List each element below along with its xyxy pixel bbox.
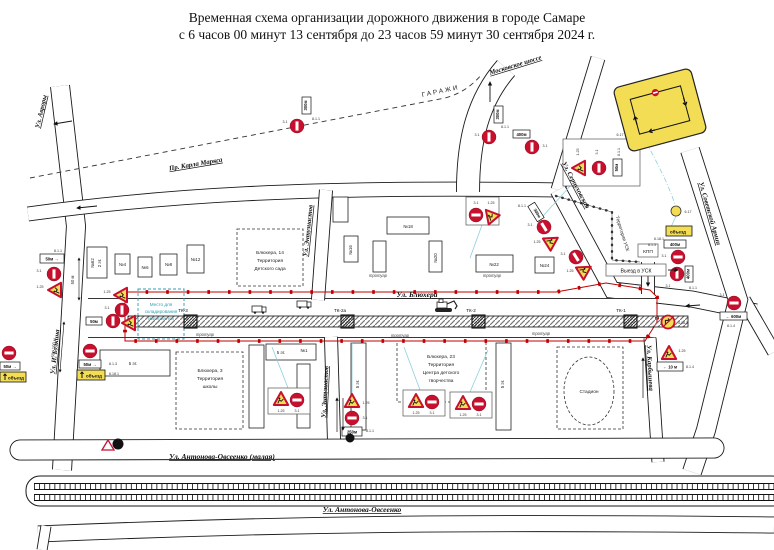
center-line4: творчества: [429, 379, 454, 384]
label-1-25-a: 1.25: [37, 285, 44, 289]
tk2a-label: ТК-2а: [334, 308, 347, 313]
roadworks-sign-p: [662, 346, 676, 359]
usk-exit-text: Выезд в УСК: [621, 269, 652, 275]
label-3-1-a: 3.1: [37, 269, 42, 273]
tk2-label: ТК-2: [466, 308, 476, 313]
detour-scheme-sign-617: 6.17: [613, 68, 707, 152]
no-entry-sign-h: [592, 161, 606, 175]
center-line3: Центра детского: [423, 370, 460, 376]
label-3-1-b1: 3.1: [105, 306, 110, 310]
label-1-25-h: 1.25: [576, 149, 580, 156]
south-5fl-4: 5 эт.: [500, 380, 505, 389]
label-3-1-g: 3.1: [543, 144, 548, 148]
sidewalk-label-4: тротуар: [391, 333, 410, 338]
label-3-1-k: 3.1: [561, 252, 566, 256]
sidewalk-label-2: тротуар: [483, 273, 502, 278]
street-label-karla-marksa: Пр. Карла Маркса: [168, 157, 224, 173]
sign-group-left-edge: 50м → объезд: [0, 346, 26, 382]
no-entry-sign-b1: [115, 303, 129, 317]
sign-group-karbysheva: 1.25 ← 10 м 8.1.4: [657, 346, 694, 371]
label-8-1-3-c: 8.1.3: [109, 362, 117, 366]
kinder-line1: Блюхера, 14: [256, 250, 284, 256]
plate-50m-b: 50м: [90, 319, 98, 324]
street-label-antonova-malaya: Ул. Антонова-Овсеенко (малая): [169, 452, 275, 461]
plate-50m-a: 50м →: [45, 257, 58, 262]
sign-group-moscow-2: 400м 8.1.1 3.1: [501, 125, 548, 154]
no-entry-sign-s1: [290, 393, 304, 407]
usk-exit-label: Выезд в УСК: [606, 264, 678, 276]
no-entry-sign-i: [469, 208, 483, 222]
street-label-avrory: Ул. Авроры: [34, 94, 48, 129]
label-3-1-s4: 3.1: [477, 413, 482, 417]
traffic-scheme-map: №62 2 эт. №4 №6 №8 №12 №16 №18 №20 №22 №…: [0, 0, 774, 550]
dimension-50m-label: 50 м: [70, 276, 75, 285]
detour-sign-c: объезд: [86, 374, 102, 379]
sidewalk-label-5: тротуар: [532, 331, 551, 336]
label-3-1-j: 3.1: [528, 223, 533, 227]
roadworks-sign-a: [48, 283, 61, 297]
building-8: №8: [165, 262, 173, 267]
no-entry-sign-s4: [472, 397, 486, 411]
building-1: №1: [300, 348, 308, 353]
label-8-1-4-n: 8.1.4: [727, 324, 735, 328]
label-1-25-k: 1.25: [567, 269, 574, 273]
label-3-1-h: 3.1: [595, 150, 599, 155]
label-1-25-b1: 1.25: [104, 290, 111, 294]
label-8-1-3-l: 8.1.3: [648, 243, 656, 247]
label-3-1-s3: 3.1: [430, 411, 435, 415]
label-8-1-1-j: 8.1.1: [518, 204, 526, 208]
building-22: №22: [489, 262, 499, 267]
building-62-floors: 2 эт.: [97, 259, 102, 268]
scheme-title-line2: с 6 часов 00 минут 13 сентября до 23 час…: [179, 27, 595, 42]
plate-600m-n: ← 600м: [726, 314, 741, 319]
sign-group-usk-exit: объезд 6.18.1 8.1.3 400м 3.1: [648, 226, 692, 264]
plate-400m-m: 400м: [686, 269, 691, 279]
label-8-1-1-g: 8.1.1: [501, 125, 509, 129]
label-3-1-n: 3.1: [720, 293, 725, 297]
no-entry-sign-g: [525, 140, 539, 154]
building-4: №4: [119, 262, 127, 267]
scheme-title-line1: Временная схема организации дорожного дв…: [189, 10, 585, 25]
no-entry-sign-b2: [106, 314, 120, 328]
detour-sign-location: 6.17: [671, 206, 692, 216]
plate-400m-l: 400м: [670, 242, 680, 247]
label-3-1-s1: 3.1: [295, 409, 300, 413]
traffic-scheme-page: №62 2 эт. №4 №6 №8 №12 №16 №18 №20 №22 №…: [0, 0, 774, 550]
label-3-1-f: 3.1: [475, 133, 480, 137]
stadium-label: Стадион: [579, 389, 598, 395]
label-3-1-m: 3.1: [666, 284, 671, 288]
south-5fl-1: 5 эт.: [129, 361, 138, 366]
railway-tracks: [26, 476, 774, 506]
sidewalk-label-3: тротуар: [196, 332, 215, 337]
no-entry-sign-l: [671, 250, 685, 264]
sidewalk-label-1: тротуар: [369, 273, 388, 278]
kinder-line3: Детского сада: [254, 266, 286, 272]
sign-stack-entuziastov: 1.25 3.1 250м 8.1.1: [337, 394, 374, 436]
storage-line1: Место для: [150, 302, 173, 307]
label-1-25-s2: 1.25: [363, 401, 370, 405]
sign-group-bulkina: 50м → 8.1.3 объезд 6.18.1: [77, 344, 119, 380]
building-62: №62: [90, 258, 95, 268]
detour-sign-d: объезд: [8, 376, 24, 381]
school-territory: Блюхера, 3 Территория школы: [176, 352, 243, 429]
school-line1: Блюхера, 3: [197, 368, 222, 374]
no-entry-sign-c: [83, 344, 97, 358]
label-6-18-1-c: 6.18.1: [109, 372, 119, 376]
area-label-garazhi: ГАРАЖИ: [421, 84, 460, 99]
label-1-25-p: 1.25: [679, 349, 686, 353]
roadworks-sign-j: [543, 232, 562, 251]
label-1-25-j: 1.25: [534, 240, 541, 244]
no-entry-sign-d: [2, 346, 16, 360]
tk1-label: ТК-1: [616, 308, 626, 313]
kpp-label: КПП: [643, 249, 653, 255]
label-3-18-2: 3.18.2: [678, 321, 688, 325]
building-6: №6: [141, 265, 149, 270]
garazhi-boundary-line: [30, 74, 482, 178]
label-3-1-i: 3.1: [474, 201, 479, 205]
stadium: Стадион: [557, 347, 623, 429]
school-line2: Территория: [197, 376, 224, 382]
no-entry-sign-a: [47, 267, 61, 281]
sign-callout-south-3: 1.25 3.1: [450, 392, 492, 418]
label-1-25-s1: 1.25: [278, 409, 285, 413]
building-16: №16: [348, 245, 353, 255]
south-5fl-2: 5 эт.: [277, 350, 286, 355]
plate-50m-h: 50м: [614, 164, 619, 172]
building-18: №18: [403, 224, 413, 229]
label-8-1-1-m: 8.1.1: [689, 286, 697, 290]
label-8-1-1-e: 8.1.1: [312, 117, 320, 121]
sign-group-serpukhovskaya-south: 300м 8.1.1 3.1 1.25: [518, 202, 562, 251]
usk-label: Территория УСК: [614, 215, 631, 252]
center-line1: Блюхера, 23: [427, 354, 455, 360]
plate-50m-d: 50м →: [3, 364, 16, 369]
label-8-1-4-p: 8.1.4: [686, 365, 694, 369]
sign-callout-south-2: 1.25 3.1: [403, 390, 445, 416]
tk3-label: ТК-3: [178, 308, 188, 313]
label-1-25-s3: 1.25: [413, 411, 420, 415]
label-8-1-1-h: 8.1.1: [617, 148, 621, 156]
street-label-blyukhera: Ул. Блюхера: [397, 290, 438, 299]
sign-callout-building22: 3.1 1.25: [466, 197, 500, 225]
sign-group-avrora: 8.1.1 50м → 3.1 1.25: [37, 249, 65, 297]
street-label-antonova: Ул. Антонова-Овсеенко: [323, 505, 402, 514]
plate-250m-s2: 250м: [347, 430, 357, 435]
label-3-1-s2: 3.1: [363, 416, 368, 420]
label-6-17-loc: 6.17: [685, 210, 692, 214]
label-1-25-s4: 1.25: [460, 413, 467, 417]
no-entry-sign-m: [670, 267, 684, 281]
building-20: №20: [433, 253, 438, 263]
no-entry-sign-s2: [345, 411, 359, 425]
sign-group-proezd: 300м 3.1 8.1.1: [283, 97, 321, 133]
no-entry-sign-f: [482, 130, 496, 144]
plate-10m-p: ← 10 м: [663, 365, 677, 370]
center-line2: Территория: [428, 362, 455, 368]
school-line3: школы: [203, 385, 218, 390]
plate-300m-f: 300м: [495, 109, 500, 119]
building-12: №12: [191, 257, 201, 262]
plate-300m-e: 300м: [303, 100, 308, 110]
label-6-18-1-l: 6.18.1: [654, 237, 664, 241]
south-5fl-3: 5 эт.: [355, 380, 360, 389]
sign-callout-south-1: 1.25 3.1: [268, 388, 310, 414]
street-label-karbysheva: Ул. Карбышева: [645, 345, 654, 392]
building-24: №24: [540, 263, 550, 268]
label-6-17-main: 6.17: [617, 133, 624, 137]
label-3-1-e: 3.1: [283, 120, 288, 124]
label-3-1-l: 3.1: [662, 254, 667, 258]
detour-sign-l: объезд: [670, 230, 686, 235]
label-1-25-i: 1.25: [488, 201, 495, 205]
street-label-entuziastov-n: Ул. Энтузиастов: [302, 205, 314, 257]
storage-line2: складирования: [145, 309, 178, 314]
no-entry-sign-n: [727, 296, 741, 310]
label-8-1-1-s2: 8.1.1: [366, 429, 374, 433]
kindergarten-territory: Блюхера, 14 Территория Детского сада: [237, 229, 303, 286]
kinder-line2: Территория: [257, 258, 284, 264]
signal-icon-2: [346, 434, 355, 443]
plate-50m-c: 50м →: [83, 362, 96, 367]
no-entry-sign-e: [290, 119, 304, 133]
label-8-1-1-a: 8.1.1: [54, 249, 62, 253]
plate-400m-g: 400м: [516, 132, 526, 137]
no-entry-sign-s3: [425, 395, 439, 409]
